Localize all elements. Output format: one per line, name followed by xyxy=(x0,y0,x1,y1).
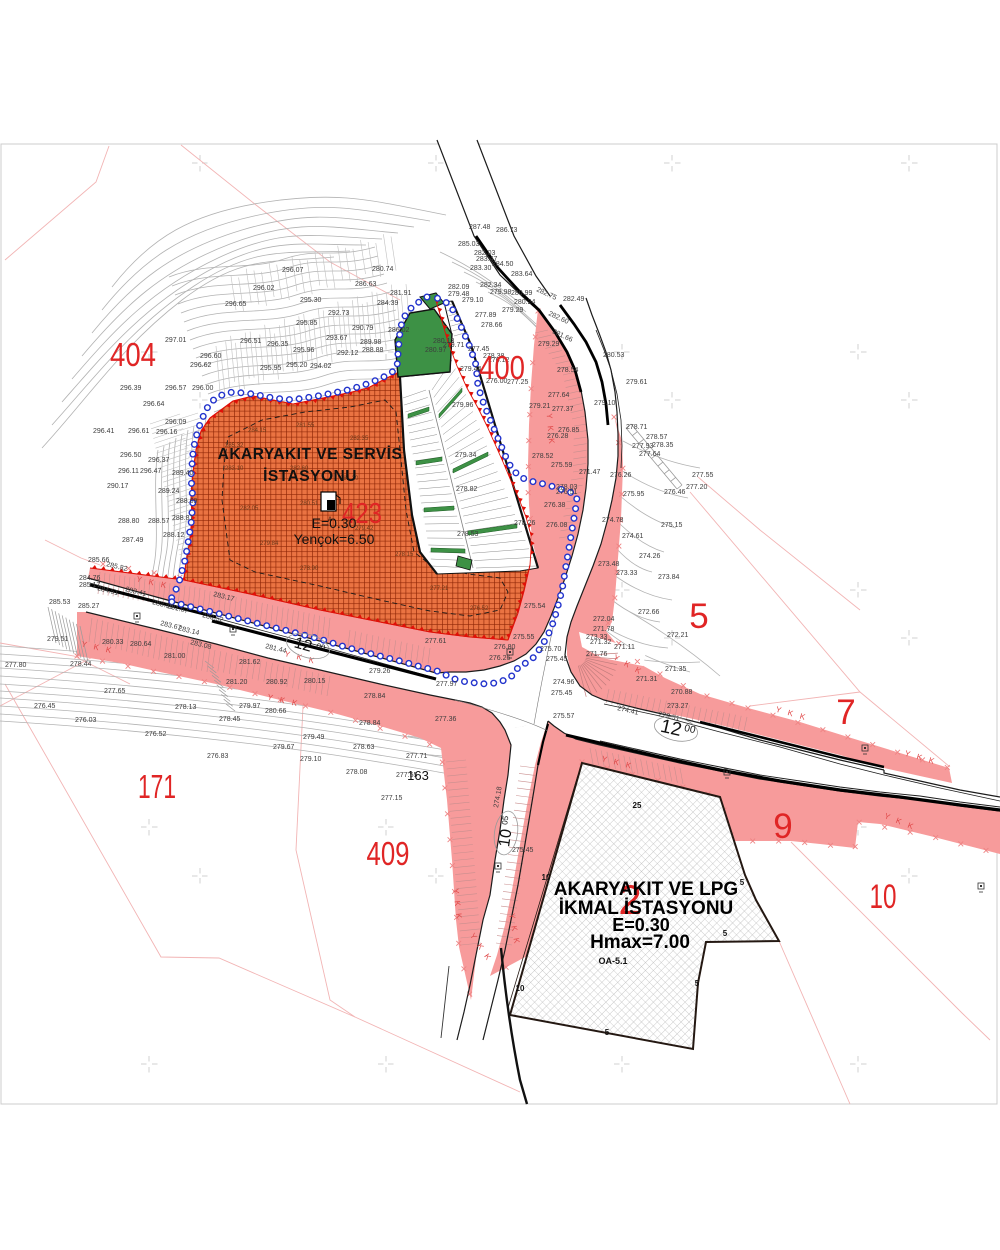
svg-text:290.17: 290.17 xyxy=(107,483,129,490)
svg-text:163: 163 xyxy=(407,768,429,783)
svg-text:277.71: 277.71 xyxy=(406,753,428,760)
svg-text:271.76: 271.76 xyxy=(586,651,608,658)
svg-text:277.64: 277.64 xyxy=(639,451,661,458)
svg-text:271.11: 271.11 xyxy=(614,644,635,651)
svg-text:283.10: 283.10 xyxy=(225,466,244,472)
svg-text:279.21: 279.21 xyxy=(529,403,551,410)
svg-text:İSTASYONU: İSTASYONU xyxy=(263,468,357,485)
svg-text:281.20: 281.20 xyxy=(226,679,248,686)
svg-text:296.65: 296.65 xyxy=(225,301,247,308)
svg-text:279.67: 279.67 xyxy=(273,744,295,751)
svg-text:296.09: 296.09 xyxy=(165,419,187,426)
svg-text:296.62: 296.62 xyxy=(190,362,212,369)
svg-text:296.61: 296.61 xyxy=(128,428,150,435)
svg-text:296.07: 296.07 xyxy=(282,267,304,274)
svg-text:278.13: 278.13 xyxy=(175,704,197,711)
svg-text:278.08: 278.08 xyxy=(346,769,368,776)
svg-text:296.16: 296.16 xyxy=(156,429,178,436)
svg-text:288.12: 288.12 xyxy=(163,532,185,539)
svg-text:277.89: 277.89 xyxy=(475,312,497,319)
svg-text:05: 05 xyxy=(500,815,510,826)
svg-text:296.37: 296.37 xyxy=(148,457,170,464)
svg-text:276.83: 276.83 xyxy=(207,753,229,760)
svg-text:288.88: 288.88 xyxy=(362,347,384,354)
svg-text:275.95: 275.95 xyxy=(623,491,645,498)
svg-text:25: 25 xyxy=(633,801,642,810)
svg-text:283.30: 283.30 xyxy=(470,265,492,272)
svg-text:288.69: 288.69 xyxy=(176,498,198,505)
svg-text:278.45: 278.45 xyxy=(219,716,241,723)
svg-text:273.84: 273.84 xyxy=(658,574,680,581)
svg-text:277.20: 277.20 xyxy=(686,484,708,491)
svg-text:279.97: 279.97 xyxy=(239,703,261,710)
svg-text:295.85: 295.85 xyxy=(296,320,318,327)
svg-text:409: 409 xyxy=(367,835,410,872)
svg-text:293.67: 293.67 xyxy=(326,335,348,342)
svg-text:Hmax=7.00: Hmax=7.00 xyxy=(590,932,690,953)
svg-text:277.21: 277.21 xyxy=(430,586,449,592)
svg-text:280.24: 280.24 xyxy=(514,299,536,306)
svg-text:295.96: 295.96 xyxy=(293,347,315,354)
svg-text:289.98: 289.98 xyxy=(360,339,382,346)
svg-text:278.63: 278.63 xyxy=(353,744,375,751)
svg-text:285.27: 285.27 xyxy=(78,603,100,610)
svg-text:10: 10 xyxy=(516,984,525,993)
svg-text:296.64: 296.64 xyxy=(143,401,165,408)
svg-text:278.15: 278.15 xyxy=(395,552,414,558)
svg-text:296.41: 296.41 xyxy=(93,428,115,435)
svg-text:275.54: 275.54 xyxy=(524,603,546,610)
svg-text:296.11: 296.11 xyxy=(118,468,139,475)
svg-text:296.57: 296.57 xyxy=(165,385,187,392)
svg-text:276.52: 276.52 xyxy=(145,731,167,738)
svg-text:10: 10 xyxy=(542,873,551,882)
svg-text:287.49: 287.49 xyxy=(122,537,144,544)
svg-text:280.66: 280.66 xyxy=(265,708,287,715)
svg-text:296.51: 296.51 xyxy=(240,338,262,345)
svg-text:279.96: 279.96 xyxy=(452,402,474,409)
svg-text:272.66: 272.66 xyxy=(638,609,660,616)
svg-text:E=0.30: E=0.30 xyxy=(312,515,357,531)
svg-text:281.55: 281.55 xyxy=(296,423,315,429)
svg-text:171: 171 xyxy=(138,768,176,805)
svg-text:277.97: 277.97 xyxy=(436,681,458,688)
svg-text:292.73: 292.73 xyxy=(328,310,350,317)
svg-text:279.26: 279.26 xyxy=(369,668,391,675)
svg-text:274.78: 274.78 xyxy=(602,517,624,524)
svg-text:271.78: 271.78 xyxy=(593,626,615,633)
svg-text:5: 5 xyxy=(689,597,708,636)
svg-text:277.37: 277.37 xyxy=(552,406,574,413)
svg-text:279.10: 279.10 xyxy=(594,400,616,407)
svg-text:5: 5 xyxy=(605,1028,610,1037)
svg-text:279.51: 279.51 xyxy=(47,636,69,643)
svg-text:280.99: 280.99 xyxy=(511,290,533,297)
svg-text:283.64: 283.64 xyxy=(511,271,533,278)
svg-text:292.12: 292.12 xyxy=(337,350,359,357)
svg-text:278.44: 278.44 xyxy=(70,661,92,668)
svg-text:276.26: 276.26 xyxy=(489,655,511,662)
svg-text:281.91: 281.91 xyxy=(390,290,412,297)
svg-text:275.45: 275.45 xyxy=(551,690,573,697)
svg-text:274.26: 274.26 xyxy=(639,553,661,560)
svg-text:288.80: 288.80 xyxy=(118,518,140,525)
svg-text:7: 7 xyxy=(836,693,855,732)
svg-text:282.34: 282.34 xyxy=(480,282,502,289)
svg-text:280.33: 280.33 xyxy=(102,639,124,646)
svg-text:296.47: 296.47 xyxy=(140,468,162,475)
svg-text:286.02: 286.02 xyxy=(388,327,410,334)
svg-text:286.63: 286.63 xyxy=(355,281,377,288)
svg-text:276.80: 276.80 xyxy=(494,644,516,651)
svg-text:276.46: 276.46 xyxy=(664,489,686,496)
svg-text:275.59: 275.59 xyxy=(551,462,573,469)
svg-text:297.01: 297.01 xyxy=(165,337,187,344)
svg-text:277.36: 277.36 xyxy=(435,716,457,723)
svg-text:279.61: 279.61 xyxy=(626,379,648,386)
svg-text:278.71: 278.71 xyxy=(626,424,648,431)
svg-text:285.53: 285.53 xyxy=(49,599,71,606)
svg-text:280.51: 280.51 xyxy=(300,501,319,507)
svg-text:277.93: 277.93 xyxy=(632,443,654,450)
svg-text:279.29: 279.29 xyxy=(538,341,560,348)
svg-text:286.73: 286.73 xyxy=(496,227,518,234)
svg-text:279.10: 279.10 xyxy=(462,297,484,304)
svg-text:277.15: 277.15 xyxy=(381,795,403,802)
svg-text:281.62: 281.62 xyxy=(239,659,261,666)
svg-text:280.53: 280.53 xyxy=(603,352,625,359)
svg-text:272.04: 272.04 xyxy=(593,616,615,623)
svg-text:284.15: 284.15 xyxy=(248,428,267,434)
svg-text:279.49: 279.49 xyxy=(303,734,325,741)
svg-text:281.00: 281.00 xyxy=(164,653,186,660)
svg-text:295.20: 295.20 xyxy=(286,362,308,369)
svg-text:AKARYAKIT VE LPG: AKARYAKIT VE LPG xyxy=(554,879,738,900)
svg-text:280.97: 280.97 xyxy=(425,347,447,354)
svg-text:278.84: 278.84 xyxy=(359,720,381,727)
svg-text:276.03: 276.03 xyxy=(75,717,97,724)
svg-text:279.98: 279.98 xyxy=(490,289,512,296)
svg-text:296.50: 296.50 xyxy=(120,452,142,459)
svg-text:278.35: 278.35 xyxy=(652,442,674,449)
svg-text:5: 5 xyxy=(723,929,728,938)
svg-text:296.60: 296.60 xyxy=(200,353,222,360)
svg-text:271.32: 271.32 xyxy=(590,639,612,646)
svg-text:273.33: 273.33 xyxy=(616,570,638,577)
svg-text:279.34: 279.34 xyxy=(455,452,477,459)
svg-text:273.27: 273.27 xyxy=(667,703,689,710)
svg-text:278.57: 278.57 xyxy=(646,434,668,441)
svg-text:275.45: 275.45 xyxy=(546,656,568,663)
svg-text:296.02: 296.02 xyxy=(253,285,275,292)
svg-text:273.48: 273.48 xyxy=(598,561,620,568)
svg-text:280.64: 280.64 xyxy=(130,641,152,648)
svg-text:274.96: 274.96 xyxy=(553,679,575,686)
svg-text:275.57: 275.57 xyxy=(553,713,575,720)
svg-text:279.10: 279.10 xyxy=(300,756,322,763)
svg-text:284.39: 284.39 xyxy=(377,300,399,307)
svg-text:5: 5 xyxy=(695,979,700,988)
svg-text:OA-5.1: OA-5.1 xyxy=(598,956,627,966)
svg-text:A: A xyxy=(328,517,332,523)
svg-text:278.53: 278.53 xyxy=(457,531,479,538)
svg-text:276.52: 276.52 xyxy=(470,606,489,612)
svg-text:274.61: 274.61 xyxy=(622,533,644,540)
svg-text:276.38: 276.38 xyxy=(544,502,566,509)
svg-text:271.31: 271.31 xyxy=(636,676,658,683)
svg-text:275.55: 275.55 xyxy=(513,634,535,641)
svg-text:280.15: 280.15 xyxy=(304,678,326,685)
svg-text:295.30: 295.30 xyxy=(300,297,322,304)
svg-text:282.35: 282.35 xyxy=(350,436,369,442)
svg-text:404: 404 xyxy=(110,336,156,373)
svg-text:282.09: 282.09 xyxy=(448,284,470,291)
svg-text:287.48: 287.48 xyxy=(469,224,491,231)
svg-text:10: 10 xyxy=(496,828,515,848)
svg-text:288.81: 288.81 xyxy=(172,515,194,522)
svg-text:9: 9 xyxy=(773,807,792,846)
svg-text:275.45: 275.45 xyxy=(512,847,534,854)
svg-text:290.79: 290.79 xyxy=(352,325,374,332)
svg-text:277.61: 277.61 xyxy=(425,638,447,645)
svg-text:285.03: 285.03 xyxy=(458,241,480,248)
svg-text:271.47: 271.47 xyxy=(579,469,601,476)
svg-text:295.95: 295.95 xyxy=(260,365,282,372)
svg-text:278.52: 278.52 xyxy=(532,453,554,460)
svg-text:277.55: 277.55 xyxy=(692,472,714,479)
svg-text:278.66: 278.66 xyxy=(481,322,503,329)
svg-text:277.65: 277.65 xyxy=(104,688,126,695)
svg-text:Yençok=6.50: Yençok=6.50 xyxy=(294,531,375,547)
svg-text:282.49: 282.49 xyxy=(563,296,585,303)
svg-text:278.54: 278.54 xyxy=(557,367,579,374)
svg-text:276.26: 276.26 xyxy=(610,472,632,479)
svg-text:288.57: 288.57 xyxy=(148,518,170,525)
svg-text:277.80: 277.80 xyxy=(5,662,27,669)
svg-text:280.74: 280.74 xyxy=(372,266,394,273)
svg-text:272.21: 272.21 xyxy=(667,632,689,639)
svg-text:278.84: 278.84 xyxy=(364,693,386,700)
svg-text:296.35: 296.35 xyxy=(267,341,289,348)
svg-text:282.03: 282.03 xyxy=(474,250,496,257)
svg-text:284.76: 284.76 xyxy=(79,575,101,582)
svg-text:270.88: 270.88 xyxy=(671,689,693,696)
svg-text:276.45: 276.45 xyxy=(34,703,56,710)
svg-text:AKARYAKIT VE SERVİS: AKARYAKIT VE SERVİS xyxy=(218,446,403,463)
svg-text:284.50: 284.50 xyxy=(492,261,514,268)
svg-text:282.05: 282.05 xyxy=(240,506,259,512)
svg-text:278.90: 278.90 xyxy=(300,566,319,572)
svg-text:296.39: 296.39 xyxy=(120,385,142,392)
svg-text:5: 5 xyxy=(740,878,745,887)
svg-text:279.29: 279.29 xyxy=(502,307,524,314)
svg-text:289.24: 289.24 xyxy=(158,488,180,495)
svg-text:280.92: 280.92 xyxy=(266,679,288,686)
svg-text:278.82: 278.82 xyxy=(456,486,478,493)
svg-text:294.02: 294.02 xyxy=(310,363,332,370)
svg-text:296.00: 296.00 xyxy=(192,385,214,392)
svg-text:275.70: 275.70 xyxy=(540,646,562,653)
svg-text:276.28: 276.28 xyxy=(547,433,569,440)
svg-text:277.64: 277.64 xyxy=(548,392,570,399)
svg-text:278.26: 278.26 xyxy=(514,520,536,527)
svg-text:279.84: 279.84 xyxy=(260,541,279,547)
svg-text:278.03: 278.03 xyxy=(556,484,578,491)
svg-text:271.35: 271.35 xyxy=(665,666,687,673)
svg-text:400: 400 xyxy=(479,349,525,386)
svg-text:10: 10 xyxy=(870,878,897,916)
svg-text:289.40: 289.40 xyxy=(172,470,194,477)
svg-text:275.15: 275.15 xyxy=(661,522,683,529)
svg-text:276.08: 276.08 xyxy=(546,522,568,529)
